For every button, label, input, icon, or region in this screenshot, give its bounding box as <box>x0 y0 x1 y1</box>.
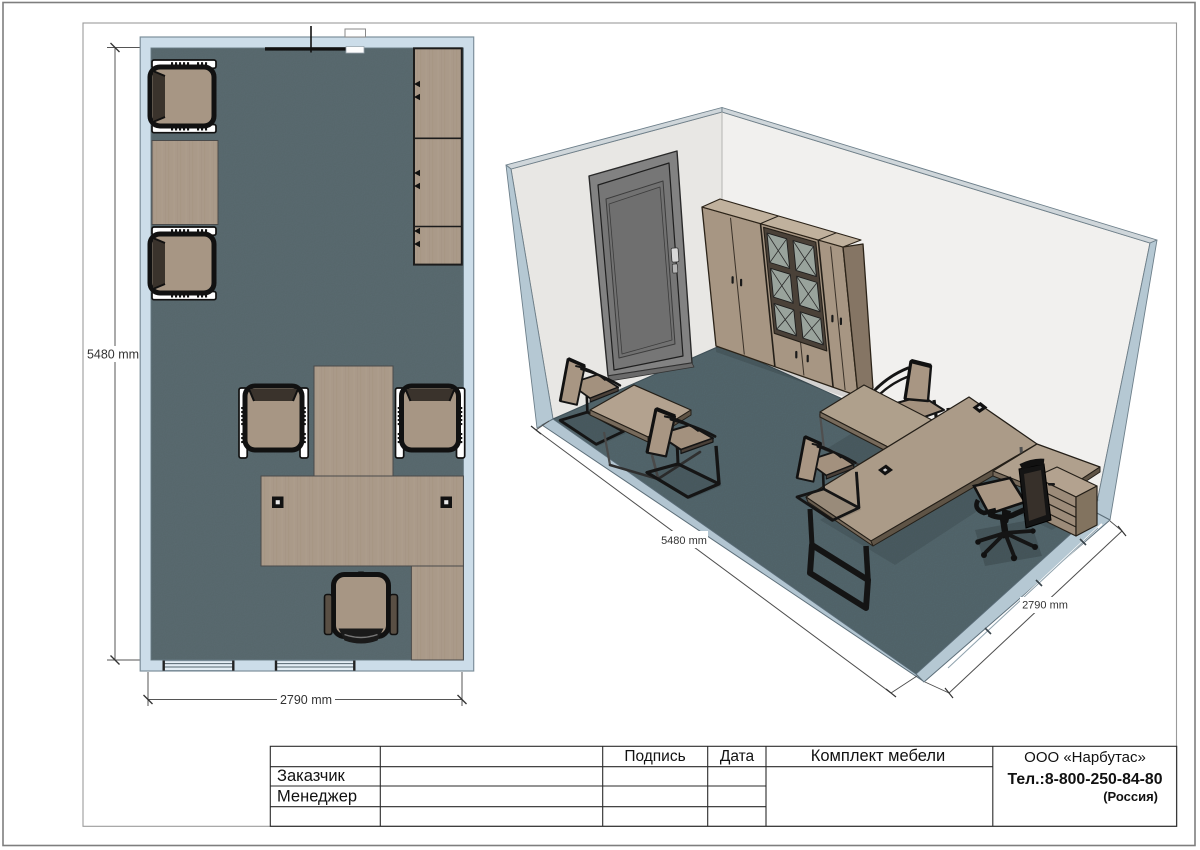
svg-text:Дата: Дата <box>720 748 755 765</box>
svg-text:2790 mm: 2790 mm <box>280 693 332 707</box>
svg-text:Подпись: Подпись <box>624 748 685 765</box>
svg-text:2790 mm: 2790 mm <box>1022 600 1068 612</box>
svg-text:Заказчик: Заказчик <box>277 767 346 785</box>
svg-text:5480 mm: 5480 mm <box>87 348 139 362</box>
svg-text:(Россия): (Россия) <box>1103 789 1158 804</box>
svg-text:5480 mm: 5480 mm <box>661 535 707 547</box>
svg-text:Менеджер: Менеджер <box>277 788 357 806</box>
svg-text:Тел.:8-800-250-84-80: Тел.:8-800-250-84-80 <box>1007 771 1162 788</box>
svg-text:ООО «Нарбутас»: ООО «Нарбутас» <box>1024 749 1146 766</box>
svg-text:Комплект мебели: Комплект мебели <box>811 747 946 765</box>
